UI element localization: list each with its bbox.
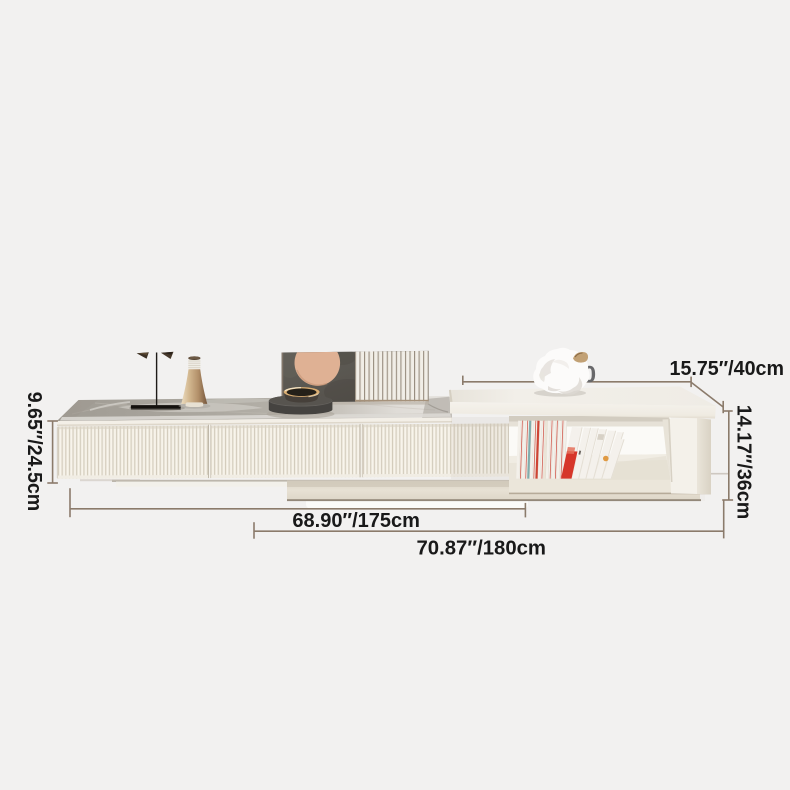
svg-text:68.90″/175cm: 68.90″/175cm — [292, 510, 420, 532]
svg-text:14.17″/36cm: 14.17″/36cm — [732, 405, 754, 520]
svg-text:15.75″/40cm: 15.75″/40cm — [670, 358, 785, 380]
svg-text:70.87″/180cm: 70.87″/180cm — [417, 538, 547, 560]
svg-text:9.65″/24.5cm: 9.65″/24.5cm — [23, 392, 45, 512]
